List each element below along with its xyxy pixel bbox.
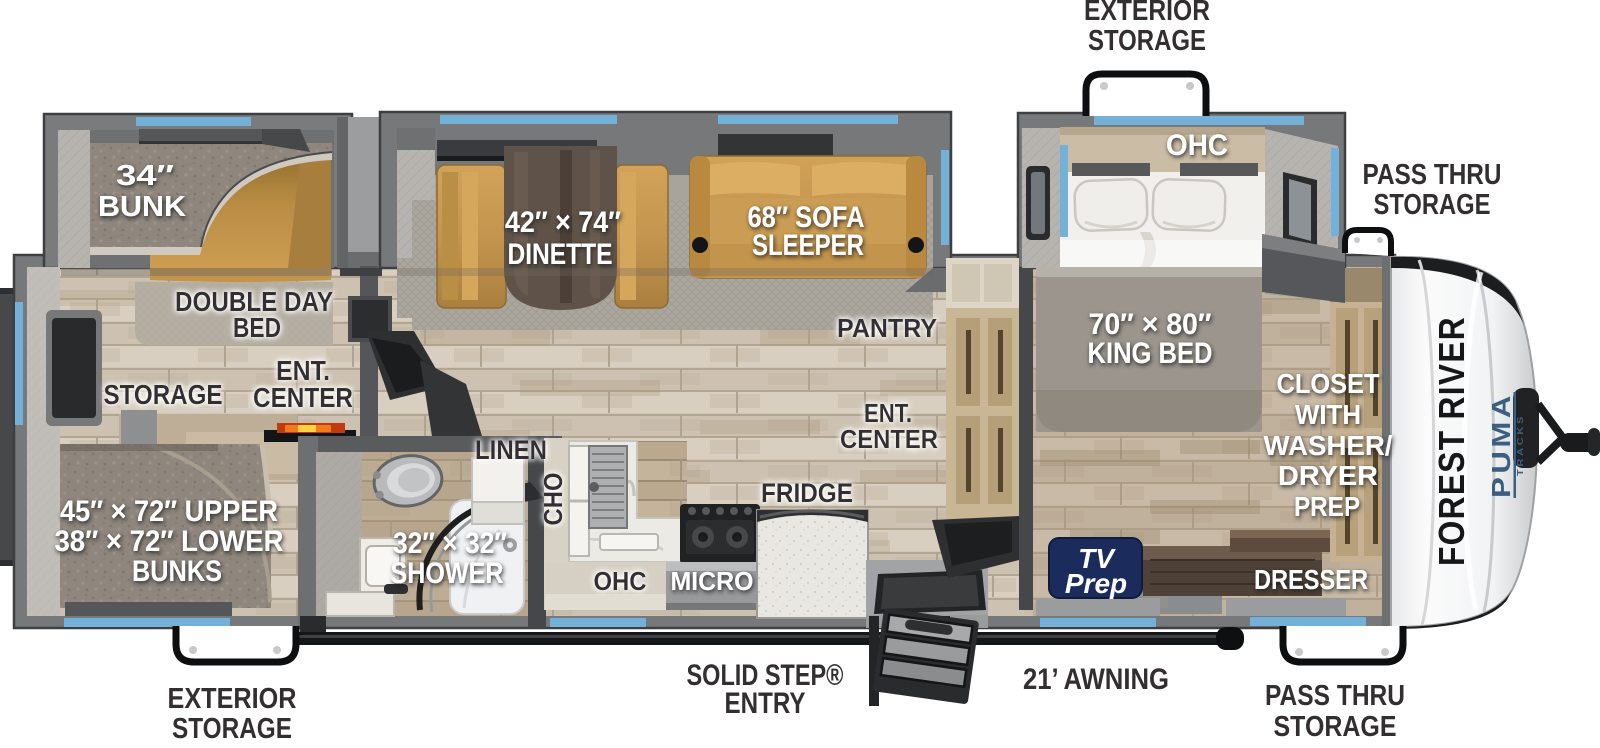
svg-text:42″ × 74″: 42″ × 74″ — [505, 206, 621, 239]
svg-text:45″ × 72″ UPPER: 45″ × 72″ UPPER — [60, 495, 278, 528]
svg-text:SHOWER: SHOWER — [391, 557, 504, 590]
svg-text:PASS THRU: PASS THRU — [1363, 159, 1502, 191]
svg-text:CENTER: CENTER — [840, 424, 938, 454]
svg-text:DRESSER: DRESSER — [1254, 564, 1368, 595]
svg-text:Prep: Prep — [1065, 568, 1127, 599]
svg-text:BUNK: BUNK — [98, 191, 186, 223]
svg-text:STORAGE: STORAGE — [104, 379, 223, 410]
svg-text:38″ × 72″ LOWER: 38″ × 72″ LOWER — [55, 525, 284, 558]
svg-text:OHC: OHC — [594, 566, 647, 596]
svg-text:FOREST RIVER: FOREST RIVER — [1431, 316, 1472, 566]
svg-text:WASHER/: WASHER/ — [1264, 430, 1393, 461]
svg-text:PASS THRU: PASS THRU — [1265, 680, 1405, 712]
svg-text:BED: BED — [233, 312, 281, 343]
svg-text:DINETTE: DINETTE — [508, 238, 613, 271]
svg-text:EXTERIOR: EXTERIOR — [168, 683, 297, 715]
svg-text:SLEEPER: SLEEPER — [752, 229, 864, 262]
svg-text:21’ AWNING: 21’ AWNING — [1023, 663, 1169, 696]
svg-text:KING BED: KING BED — [1088, 337, 1213, 370]
svg-text:PREP: PREP — [1294, 491, 1360, 522]
svg-text:32″ × 32″: 32″ × 32″ — [393, 527, 507, 560]
svg-text:PANTRY: PANTRY — [837, 313, 937, 343]
svg-text:STORAGE: STORAGE — [1374, 189, 1491, 221]
svg-text:STORAGE: STORAGE — [1088, 25, 1206, 57]
svg-text:STORAGE: STORAGE — [172, 713, 292, 745]
svg-text:LINEN: LINEN — [475, 435, 547, 465]
svg-text:PUMA: PUMA — [1486, 392, 1516, 498]
svg-text:CHO: CHO — [538, 473, 568, 526]
svg-text:BUNKS: BUNKS — [132, 555, 222, 588]
svg-text:TRACKS: TRACKS — [1515, 414, 1525, 476]
svg-text:DRYER: DRYER — [1278, 460, 1378, 491]
svg-text:34″: 34″ — [116, 160, 174, 192]
svg-text:MICRO: MICRO — [671, 566, 754, 596]
svg-text:CLOSET: CLOSET — [1277, 368, 1380, 399]
svg-text:FRIDGE: FRIDGE — [761, 478, 853, 508]
svg-text:EXTERIOR: EXTERIOR — [1084, 0, 1210, 27]
svg-text:ENTRY: ENTRY — [725, 687, 806, 720]
svg-text:STORAGE: STORAGE — [1274, 711, 1397, 743]
svg-text:WITH: WITH — [1295, 399, 1361, 430]
svg-text:CENTER: CENTER — [253, 382, 353, 413]
svg-text:OHC: OHC — [1166, 129, 1228, 162]
